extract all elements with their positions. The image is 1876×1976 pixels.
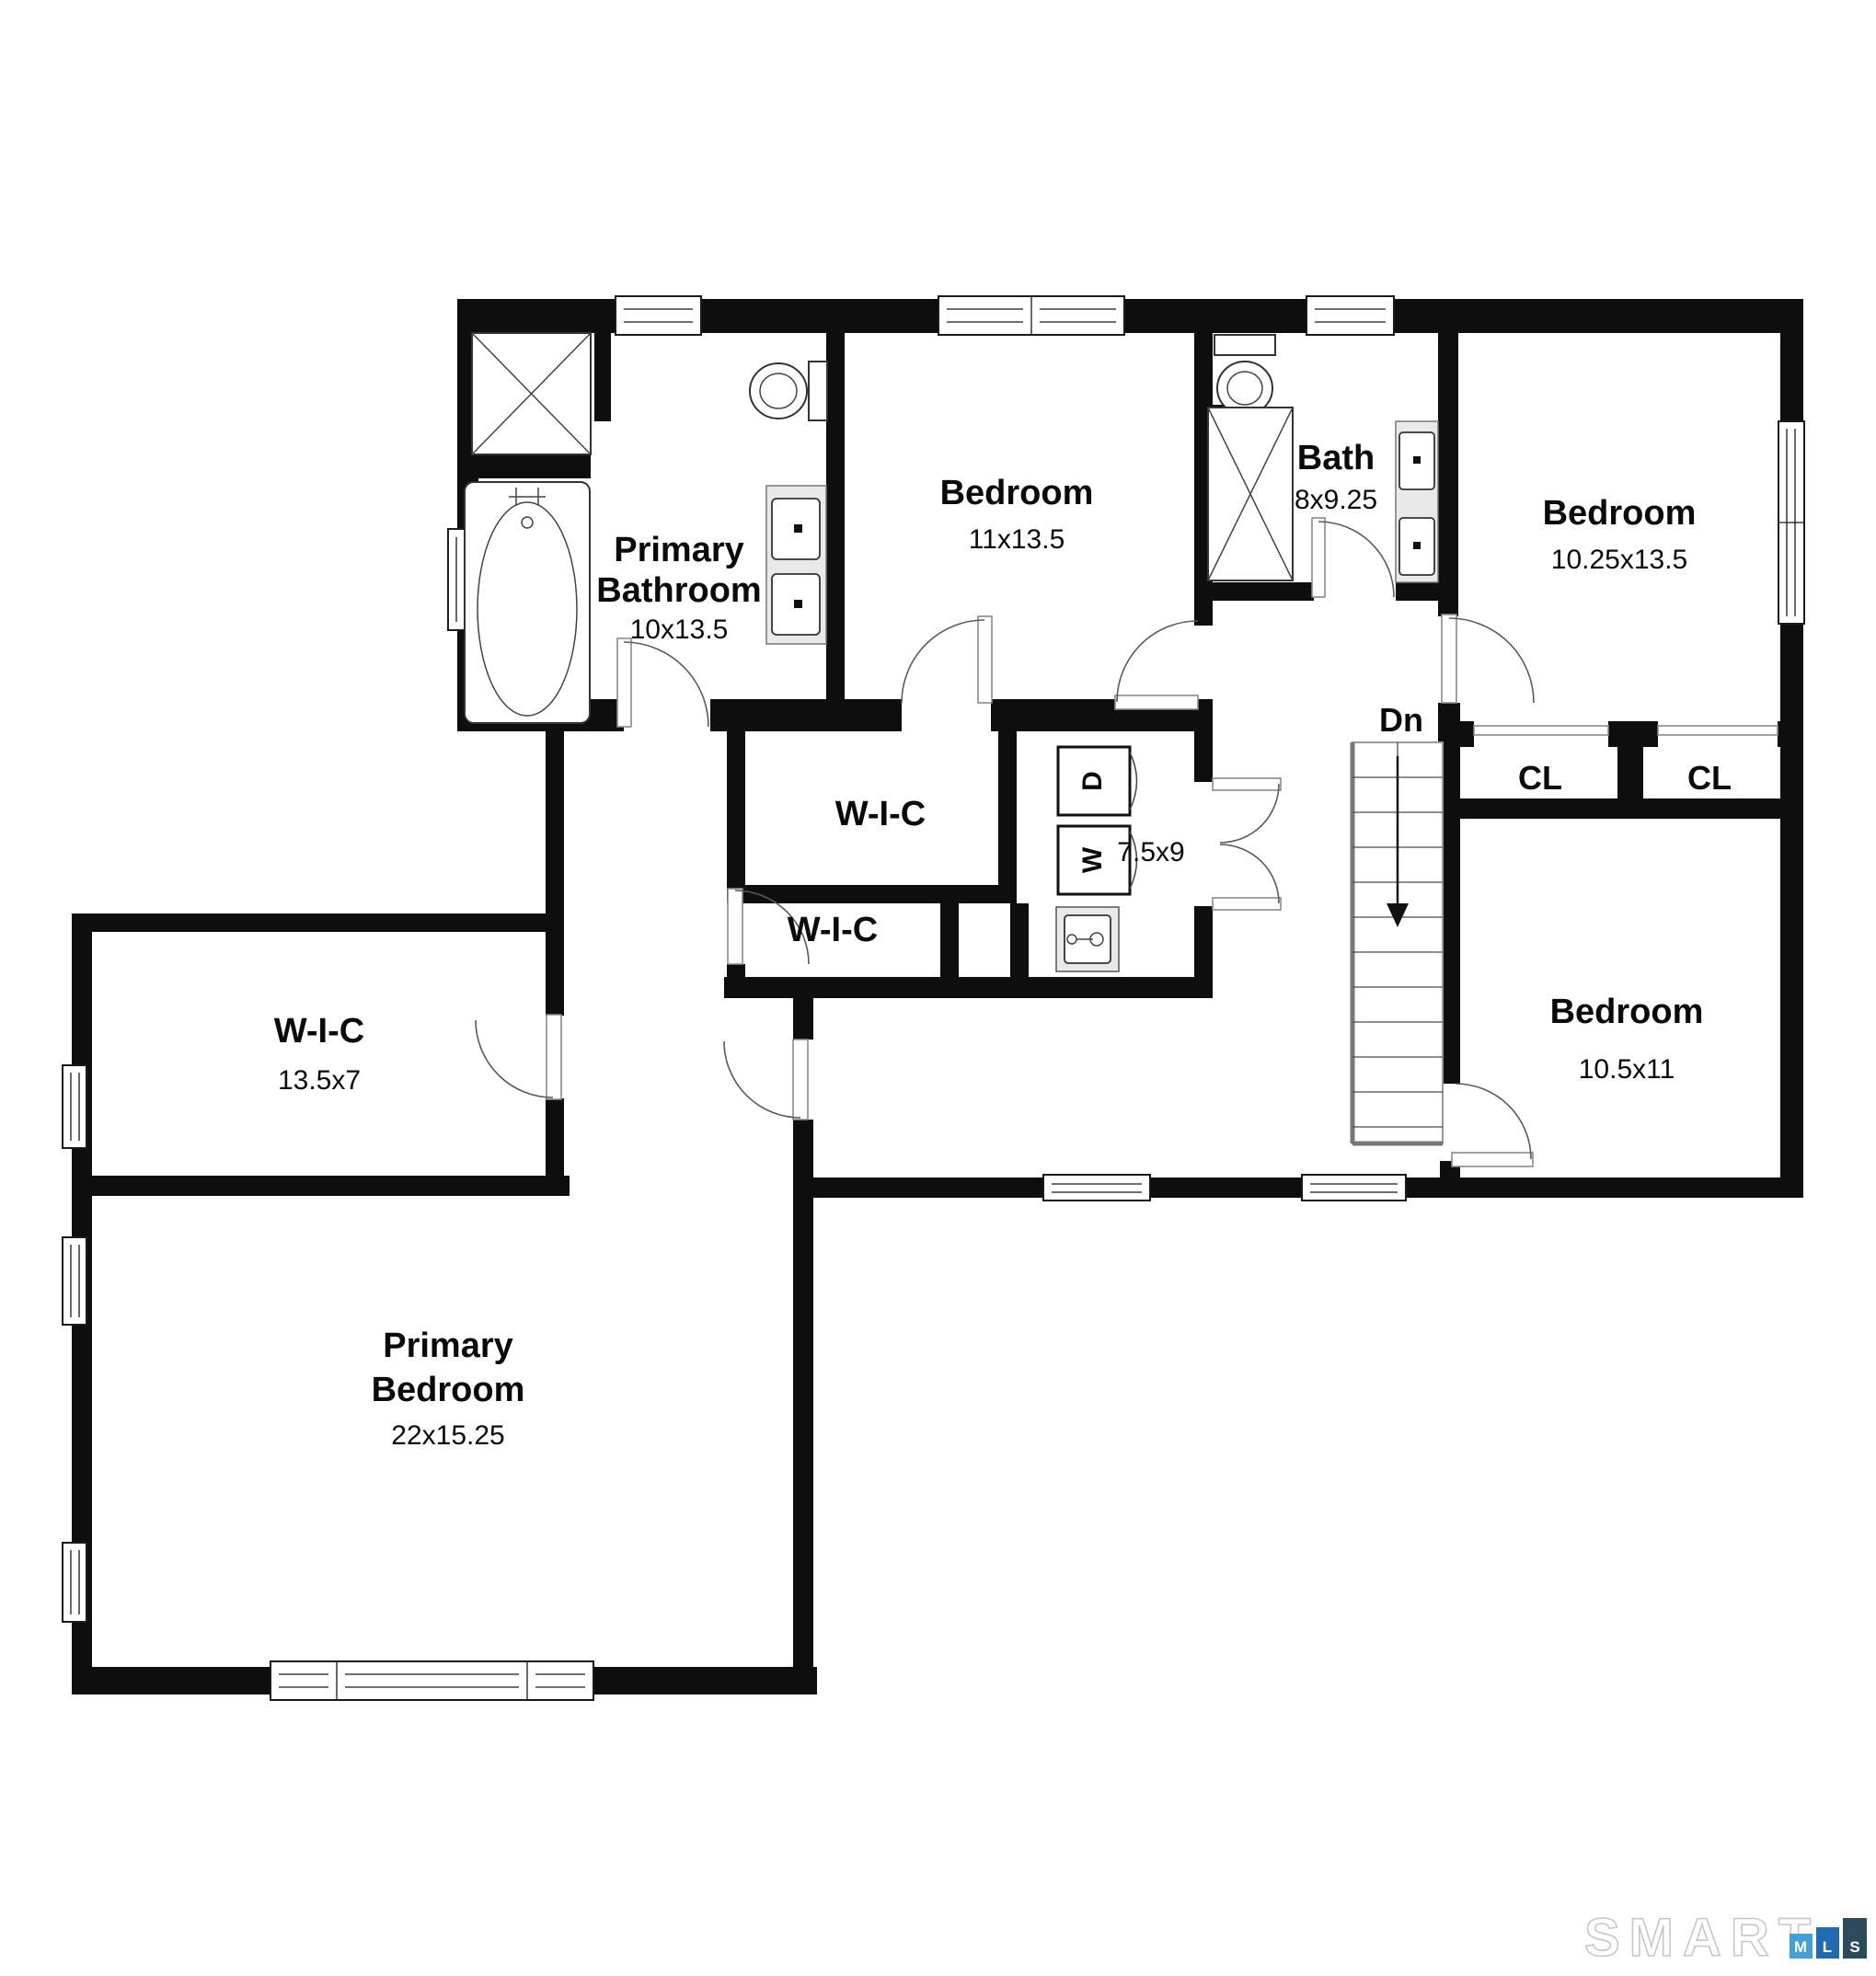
laundry-dims: 7.5x9 [1117,837,1184,867]
shower-icon [472,333,591,454]
toilet-icon [750,362,827,420]
closet1-label: CL [1518,759,1562,797]
bedroom-right-dims: 10.25x13.5 [1551,545,1687,575]
toilet-icon [1214,335,1275,415]
door-wic-primary [476,1015,561,1099]
window [63,1237,86,1325]
door-bedroom-small [1452,1084,1533,1166]
door-bath [1312,518,1394,597]
door-laundry-double [1213,778,1281,910]
vanity-sink-icon [1396,421,1438,582]
washer-label: W [1077,846,1108,873]
bath-label: Bath [1297,439,1375,477]
window [616,296,701,335]
window [270,1661,593,1700]
floor-plan-canvas: D W [0,0,1876,1976]
window [1306,296,1394,335]
window [1043,1175,1150,1201]
logo-l-letter: L [1823,1938,1832,1956]
primary-bedroom-label: Primary [383,1327,513,1365]
vanity-sink-icon [766,486,826,644]
door-hall-corridor [724,1040,808,1120]
dryer-icon: D [1058,747,1137,815]
bedroom-top-dims: 11x13.5 [969,524,1065,555]
primary-bedroom-dims: 22x15.25 [391,1420,504,1451]
bedroom-top-label: Bedroom [940,474,1094,512]
wic-primary-dims: 13.5x7 [278,1065,361,1096]
fixtures: D W [465,333,1438,971]
door-bedroom-right [1442,615,1534,703]
door-bedroom-top-wic [902,616,992,703]
closet2-label: CL [1687,759,1732,797]
wic-upper-label: W-I-C [835,795,926,833]
primary-bedroom-label2: Bedroom [372,1371,525,1409]
closet-door-2 [1658,726,1778,735]
window [1302,1175,1406,1201]
dryer-label: D [1077,771,1108,791]
floor-plan-page: D W [0,0,1876,1976]
window [63,1543,86,1622]
shower-icon [1208,408,1293,580]
door-bedroom-top-hall [1115,621,1198,709]
logo-word: SMART [1584,1908,1820,1968]
door-primary-bathroom [617,638,708,727]
bedroom-small-label: Bedroom [1550,993,1704,1031]
closet-door-1 [1474,726,1608,735]
window [63,1065,86,1148]
window [938,296,1124,335]
bath-dims: 8x9.25 [1295,485,1377,515]
stairs [1352,742,1443,1143]
bedroom-small-dims: 10.5x11 [1579,1054,1675,1085]
stairs-dn-label: Dn [1379,701,1423,739]
window [1778,421,1804,624]
bedroom-right-label: Bedroom [1543,494,1697,533]
logo-s-letter: S [1849,1938,1859,1956]
primary-bathroom-label: Primary [614,531,744,569]
wic-lower-label: W-I-C [788,911,878,949]
primary-bathroom-label2: Bathroom [596,571,761,610]
wic-primary-label: W-I-C [274,1012,364,1051]
bathtub-icon [465,482,590,723]
logo-m-letter: M [1794,1938,1807,1956]
primary-bathroom-dims: 10x13.5 [630,615,729,645]
laundry-sink-icon [1056,907,1119,971]
smartmls-logo: SMART M L S [1584,1908,1867,1968]
